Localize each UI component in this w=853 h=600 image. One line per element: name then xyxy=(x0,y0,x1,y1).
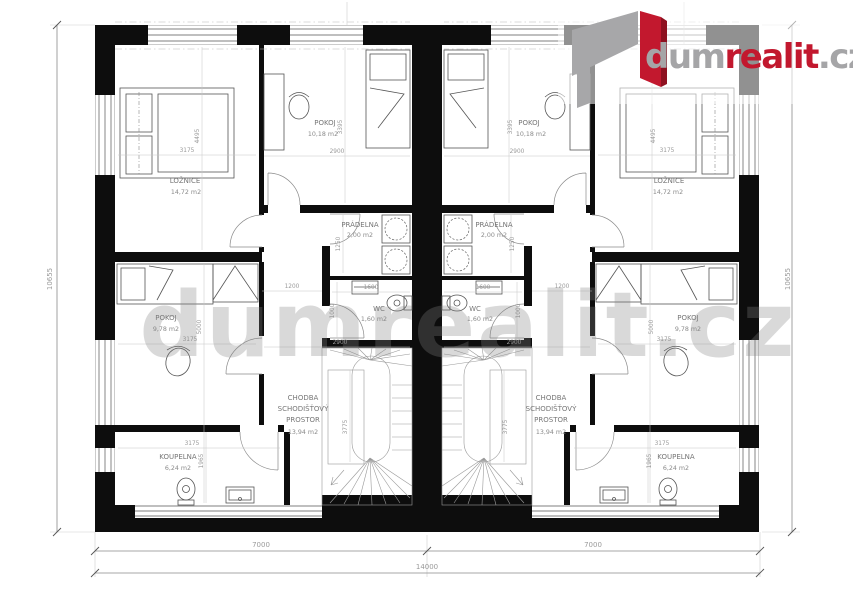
dim-pokoj-horni-d-right: 3395 xyxy=(508,119,514,134)
dumrealit-logo: dumrealit.cz xyxy=(558,0,853,108)
pokoj-horni-right-name: POKOJ xyxy=(518,119,540,127)
dim-loznice-w-left: 3175 xyxy=(180,148,195,154)
dim-unit-width-right: 7000 xyxy=(584,541,602,549)
koupelna-right-name: KOUPELNA xyxy=(657,453,695,461)
dim-loznice-d-left: 4495 xyxy=(195,128,201,143)
dim-pokoj-horni-w-right: 2900 xyxy=(510,149,525,155)
logo-wordmark: dumrealit.cz xyxy=(645,37,853,77)
logo-text-cz: .cz xyxy=(818,37,853,77)
koupelna-left-area: 6,24 m2 xyxy=(165,465,191,472)
chodba-left-name-1: CHODBA xyxy=(288,394,319,402)
loznice-right-area: 14,72 m2 xyxy=(653,189,683,196)
chodba-left-name-2: SCHODIŠŤOVÝ xyxy=(278,404,329,413)
logo-text-dum: dum xyxy=(645,37,724,77)
pradelna-right-area: 2,00 m2 xyxy=(481,232,507,239)
chodba-right-name-1: CHODBA xyxy=(536,394,567,402)
watermark: dumrealit.cz xyxy=(139,273,796,378)
dim-loznice-w-right: 3175 xyxy=(660,148,675,154)
chodba-right-name-3: PROSTOR xyxy=(534,416,568,424)
koupelna-left-name: KOUPELNA xyxy=(159,453,197,461)
dim-schodiste-d-right: 3775 xyxy=(503,419,509,434)
dim-schodiste-d-left: 3775 xyxy=(343,419,349,434)
dim-unit-width-left: 7000 xyxy=(252,541,270,549)
chodba-left-name-3: PROSTOR xyxy=(286,416,320,424)
loznice-left-name: LOŽNICE xyxy=(170,176,201,185)
pradelna-left-area: 2,00 m2 xyxy=(347,232,373,239)
pokoj-horni-left-name: POKOJ xyxy=(314,119,336,127)
dim-total-depth-left: 10655 xyxy=(46,268,54,290)
dim-pokoj-horni-d-left: 3395 xyxy=(338,119,344,134)
dim-total-width: 14000 xyxy=(416,563,438,571)
loznice-left-area: 14,72 m2 xyxy=(171,189,201,196)
pradelna-left-name: PRÁDELNA xyxy=(341,220,379,229)
floorplan-image: LOŽNICE 14,72 m2 POKOJ 10,18 m2 PRÁDELNA… xyxy=(0,0,853,600)
dim-koupelna-w-right: 3175 xyxy=(655,441,670,447)
chodba-left-area: 13,94 m2 xyxy=(288,429,318,436)
dim-pokoj-horni-w-left: 2900 xyxy=(330,149,345,155)
chodba-right-area: 13,94 m2 xyxy=(536,429,566,436)
chodba-right-name-2: SCHODIŠŤOVÝ xyxy=(526,404,577,413)
logo-text-realit: realit xyxy=(724,37,819,77)
dim-pradelna-d-left: 1250 xyxy=(336,236,342,251)
dim-loznice-d-right: 4495 xyxy=(651,128,657,143)
floorplan-svg: LOŽNICE 14,72 m2 POKOJ 10,18 m2 PRÁDELNA… xyxy=(0,0,853,600)
dim-pradelna-d-right: 1250 xyxy=(510,236,516,251)
koupelna-right-area: 6,24 m2 xyxy=(663,465,689,472)
dim-koupelna-d-right: 1965 xyxy=(647,453,653,468)
logo-leg-shape xyxy=(577,64,590,108)
pokoj-horni-left-area: 10,18 m2 xyxy=(308,131,338,138)
pradelna-right-name: PRÁDELNA xyxy=(475,220,513,229)
dim-koupelna-d-left: 1965 xyxy=(199,453,205,468)
pokoj-horni-right-area: 10,18 m2 xyxy=(516,131,546,138)
loznice-right-name: LOŽNICE xyxy=(654,176,685,185)
dim-koupelna-w-left: 3175 xyxy=(185,441,200,447)
